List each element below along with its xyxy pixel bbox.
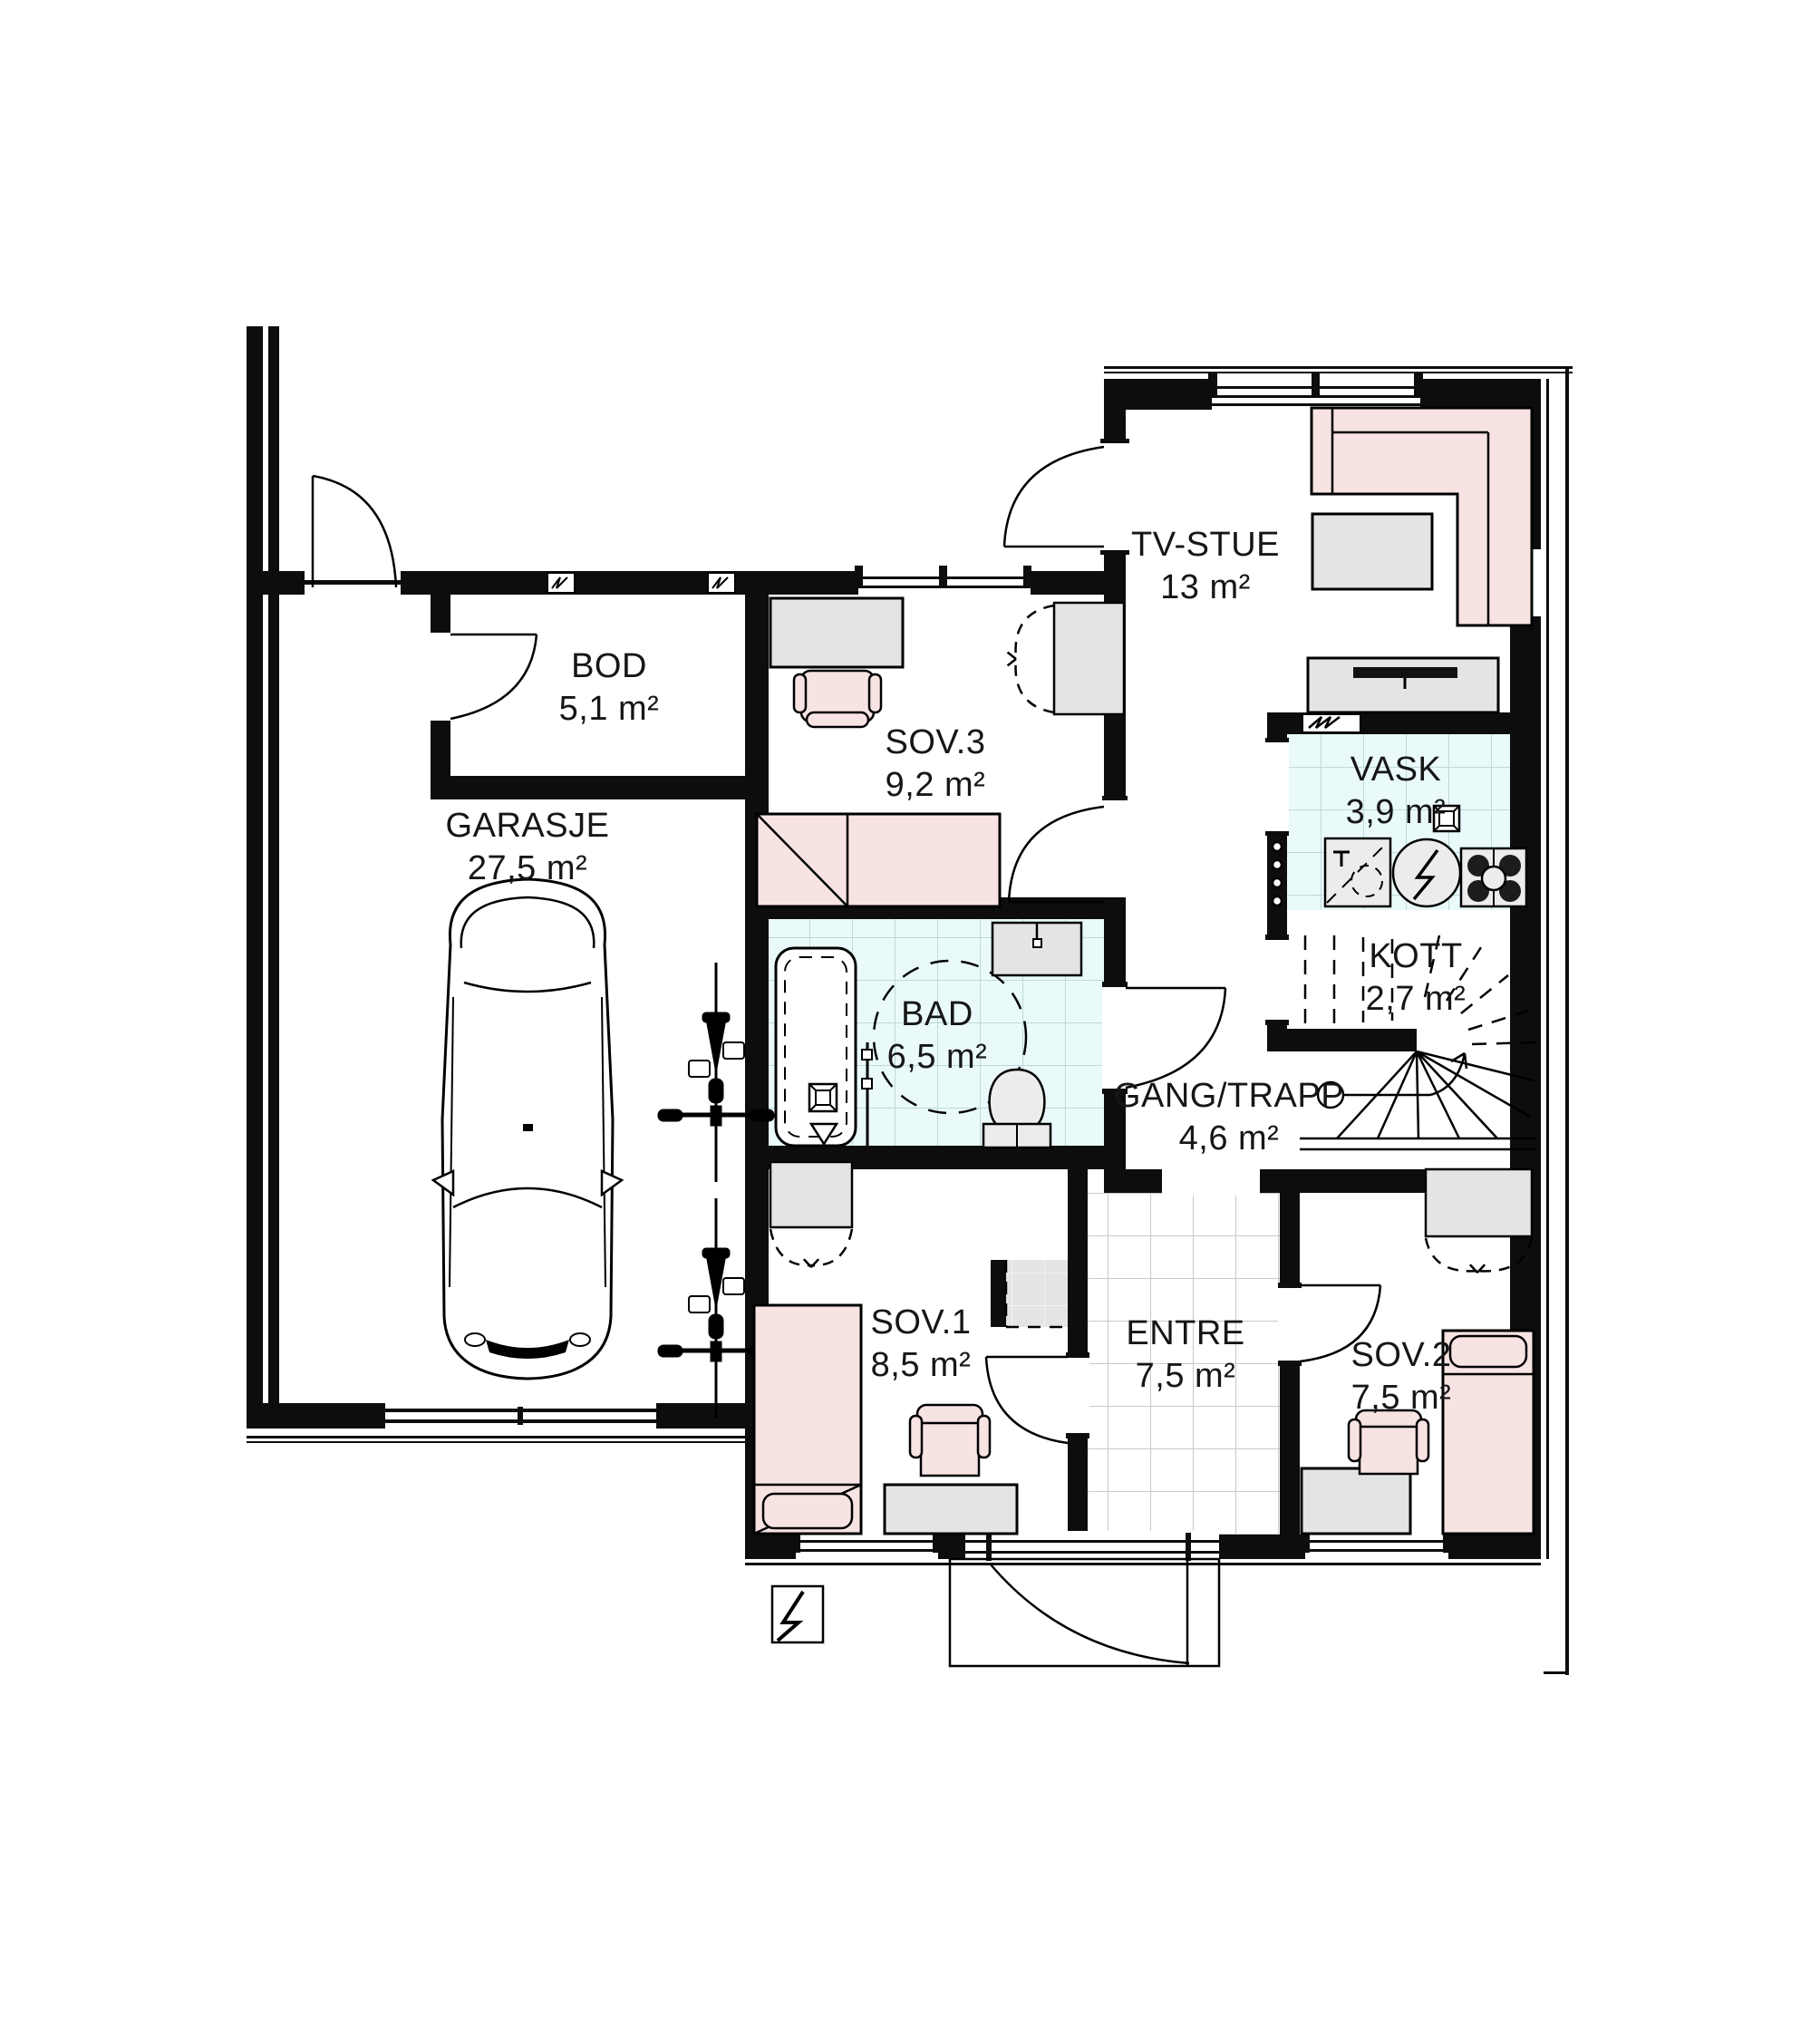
entrance-porch [950,1559,1219,1666]
room-area: 7,5 m² [1351,1377,1452,1419]
room-label-entre: ENTRE 7,5 m² [1126,1312,1244,1398]
door-swing-tvstue-entry [1004,447,1104,547]
car [433,879,622,1379]
washing-machine-icon [1393,839,1460,906]
toilet-icon [983,1070,1050,1148]
desk [1302,1468,1410,1534]
room-label-tvstue: TV-STUE 13 m² [1131,524,1280,609]
stove-icon [1461,848,1526,906]
desk [770,598,903,667]
garage-door [385,1407,656,1425]
room-name: ENTRE [1126,1312,1244,1355]
laundry-sink-cabinet [1325,838,1390,906]
bed [1443,1331,1534,1534]
bathtub [776,948,856,1146]
electrical-lightning-icon [772,1586,823,1642]
wardrobe-dashed-doors [1003,605,1054,712]
chair [910,1405,990,1476]
room-name: GANG/TRAPP [1114,1075,1344,1118]
wardrobe-dashed-doors [770,1229,852,1267]
room-area: 13 m² [1131,567,1280,609]
room-label-gang: GANG/TRAPP 4,6 m² [1114,1075,1344,1160]
floor-plan: BOD 5,1 m² GARASJE 27,5 m² SOV.3 9,2 m² … [0,0,1820,2034]
chair [1349,1410,1428,1474]
room-label-sov3: SOV.3 9,2 m² [886,722,986,807]
room-label-sov2: SOV.2 7,5 m² [1351,1334,1452,1419]
room-area: 7,5 m² [1126,1355,1244,1398]
tv-bench [1308,658,1498,712]
chair [794,671,881,727]
nook-wall-stub [991,1260,1006,1327]
room-label-vask: VASK 3,9 m² [1346,749,1447,834]
door-swing-bod [450,634,537,719]
room-area: 8,5 m² [871,1344,972,1387]
door-swing-sov3 [1009,807,1104,902]
room-area: 2,7 m² [1366,978,1467,1021]
kott-stair-divider-wall [1267,1029,1417,1051]
bod-bottom-wall [431,776,767,799]
bed [757,814,1000,906]
room-area: 9,2 m² [886,764,986,807]
room-name: SOV.1 [871,1302,972,1344]
room-area: 27,5 m² [446,847,610,890]
room-name: VASK [1346,749,1447,791]
room-name: SOV.2 [1351,1334,1452,1377]
wardrobe [1003,603,1124,714]
window [855,566,1031,598]
door-swing-entrance [991,1564,1189,1663]
room-name: BAD [887,993,988,1036]
room-label-bad: BAD 6,5 m² [887,993,988,1079]
room-name: GARASJE [446,805,610,847]
floor-drain-icon [809,1084,837,1111]
wardrobe [770,1162,852,1267]
garage-door-right-stub [656,1403,769,1429]
bed [754,1305,861,1534]
door-swing-bad [1126,988,1225,1088]
room-area: 5,1 m² [559,688,660,731]
bathroom-sink [992,923,1081,975]
room-area: 4,6 m² [1114,1118,1344,1160]
room-name: SOV.3 [886,722,986,764]
room-label-garasje: GARASJE 27,5 m² [446,805,610,890]
room-area: 6,5 m² [887,1036,988,1079]
door-swing-sov1 [986,1357,1068,1443]
left-boundary-wall [247,326,263,1405]
room-name: TV-STUE [1131,524,1280,567]
coffee-table [1312,514,1432,589]
desk [885,1485,1017,1534]
room-label-bod: BOD 5,1 m² [559,645,660,731]
room-area: 3,9 m² [1346,791,1447,834]
room-name: KOTT [1366,935,1467,978]
room-label-sov1: SOV.1 8,5 m² [871,1302,972,1387]
electrical-panel-icon [1302,714,1360,732]
garage-door-left-stub [247,1403,385,1429]
room-label-kott: KOTT 2,7 m² [1366,935,1467,1021]
room-name: BOD [559,645,660,688]
